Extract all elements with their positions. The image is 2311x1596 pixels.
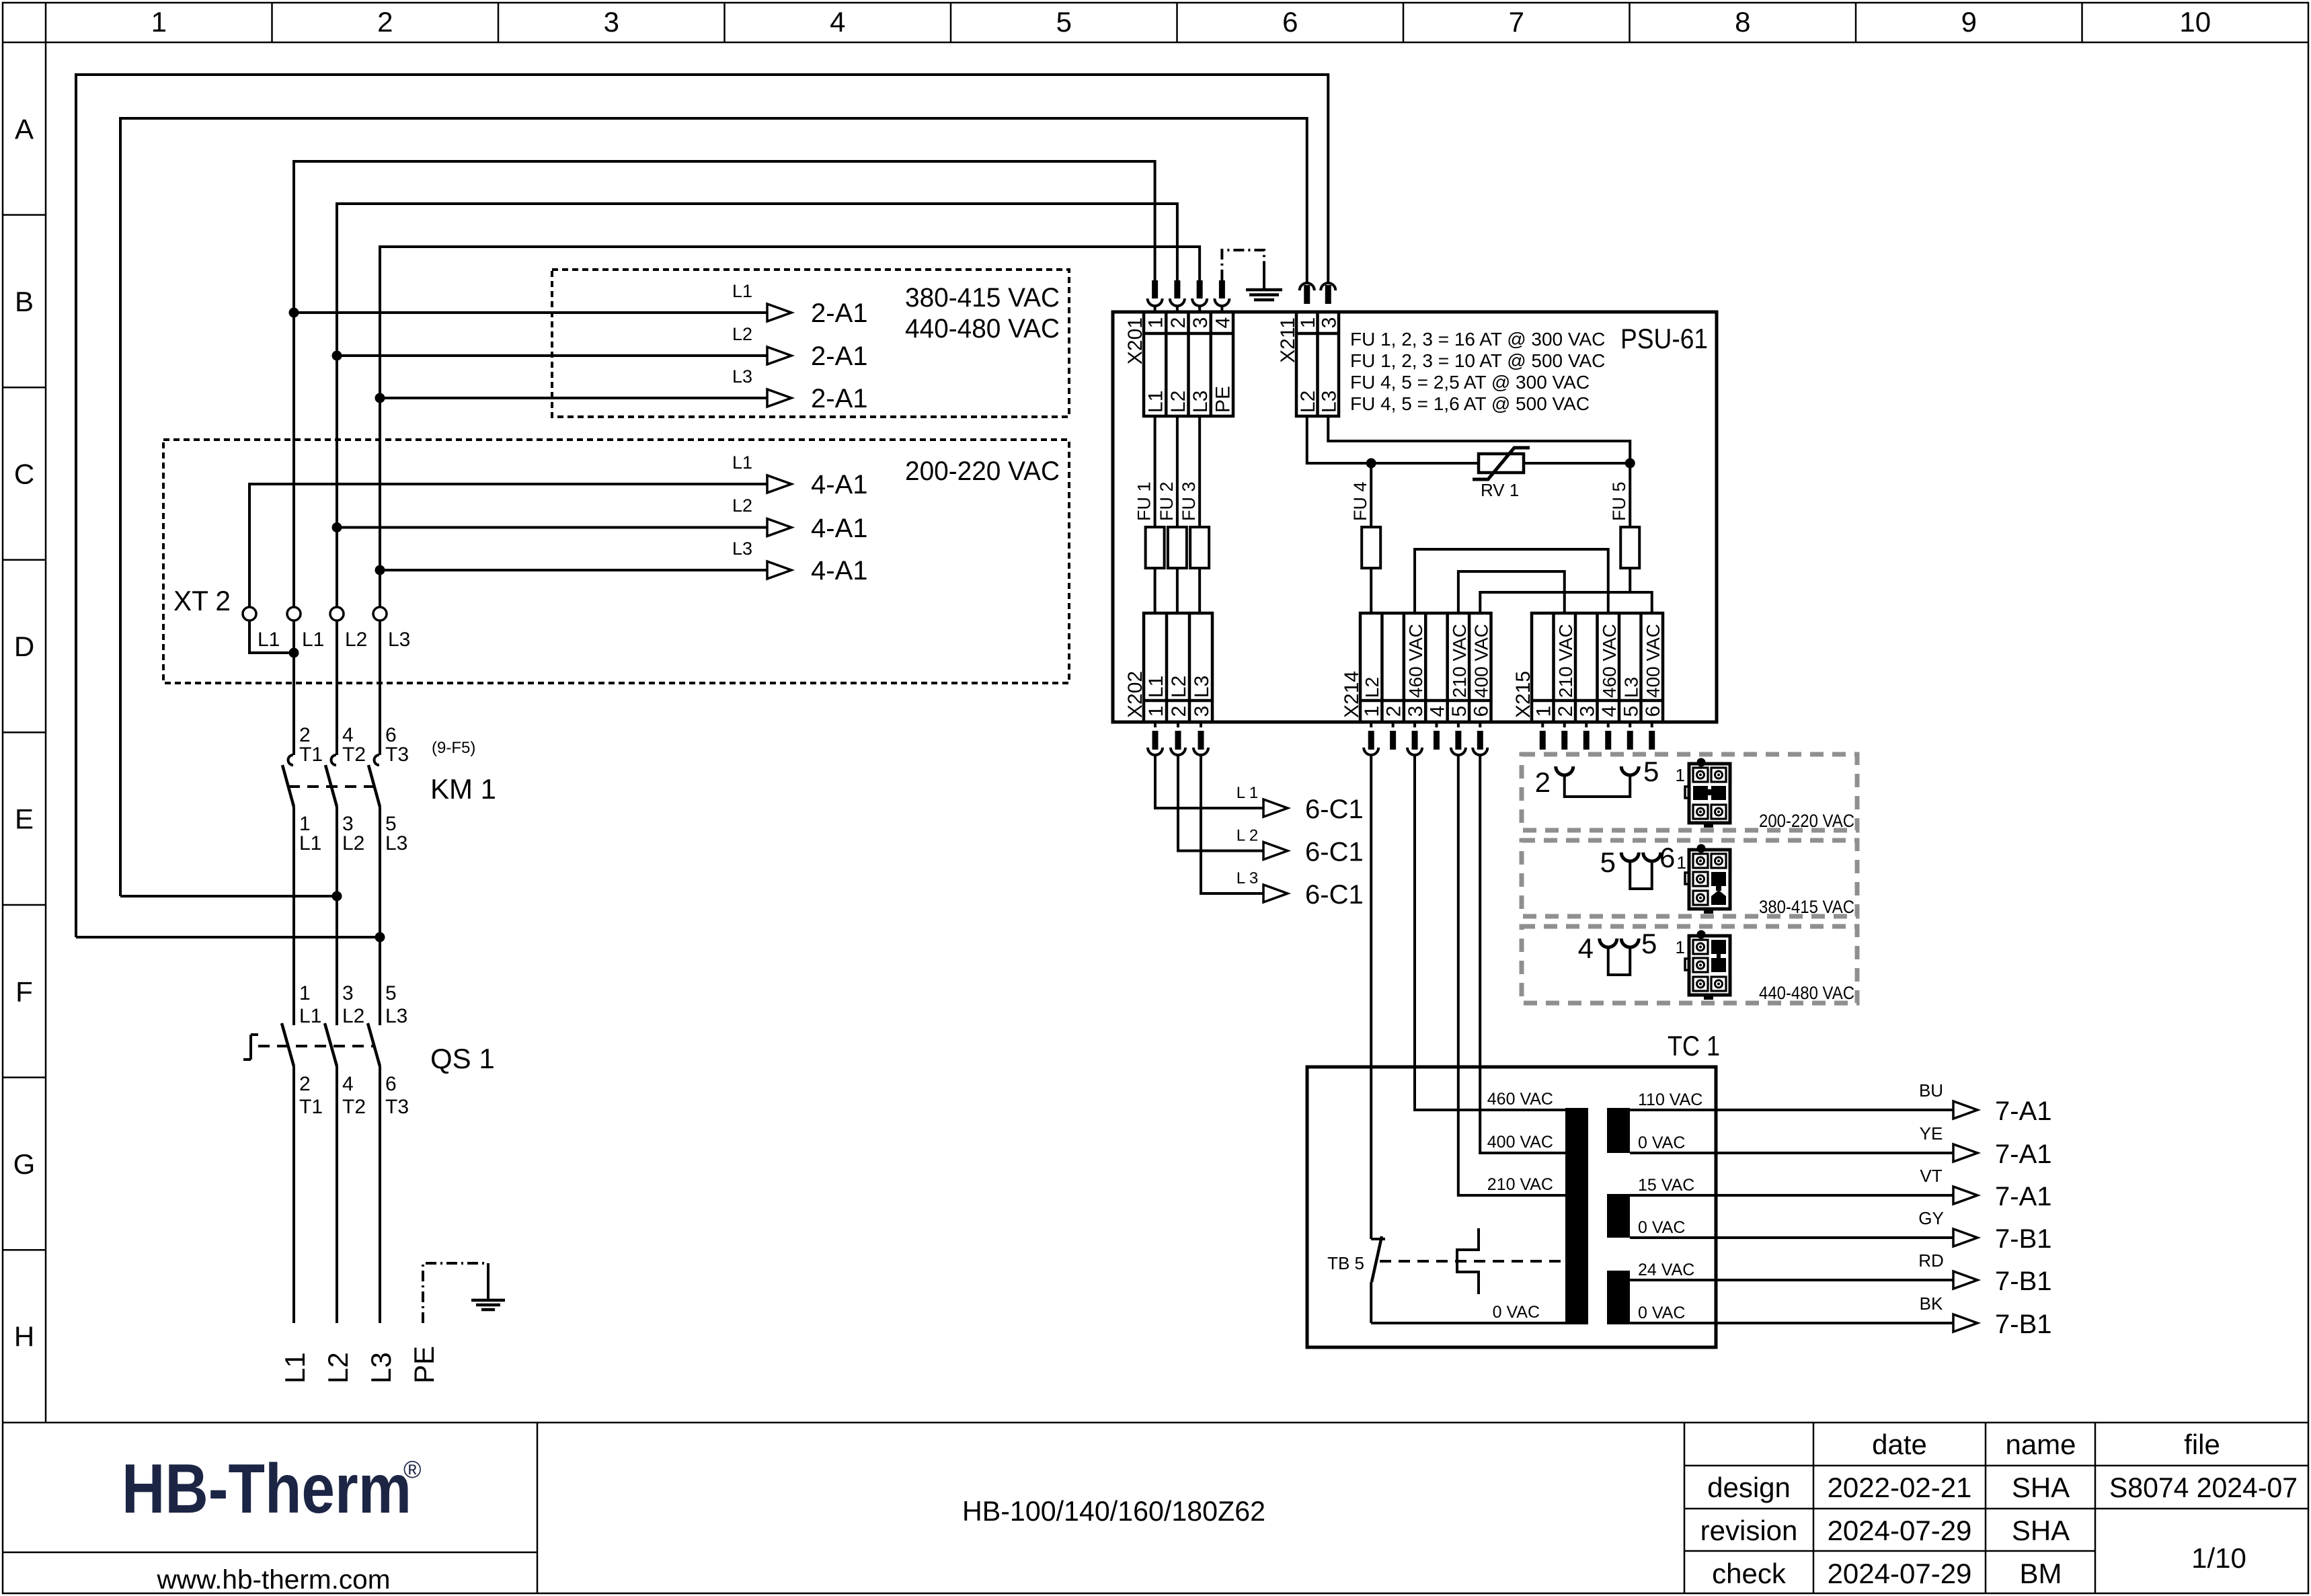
svg-text:C: C xyxy=(14,458,34,490)
svg-text:2-A1: 2-A1 xyxy=(811,384,868,413)
svg-text:L2: L2 xyxy=(732,324,752,344)
svg-text:4: 4 xyxy=(1426,706,1448,717)
svg-text:4-A1: 4-A1 xyxy=(811,514,868,543)
svg-text:L1: L1 xyxy=(258,629,280,651)
svg-text:L3: L3 xyxy=(1620,677,1641,698)
svg-text:5: 5 xyxy=(1643,756,1659,787)
svg-text:210 VAC: 210 VAC xyxy=(1449,624,1470,698)
svg-text:X202: X202 xyxy=(1124,671,1146,718)
svg-text:0 VAC: 0 VAC xyxy=(1638,1304,1685,1322)
svg-text:4-A1: 4-A1 xyxy=(811,556,868,586)
svg-text:L3: L3 xyxy=(1318,391,1340,413)
svg-text:5: 5 xyxy=(1620,706,1642,717)
svg-text:2-A1: 2-A1 xyxy=(811,342,868,371)
svg-text:L3: L3 xyxy=(732,366,752,387)
svg-text:7-A1: 7-A1 xyxy=(1995,1182,2052,1211)
svg-text:YE: YE xyxy=(1920,1123,1943,1144)
svg-text:G: G xyxy=(13,1148,36,1180)
svg-text:10: 10 xyxy=(2179,6,2211,38)
svg-text:T3: T3 xyxy=(385,744,409,766)
svg-text:460 VAC: 460 VAC xyxy=(1487,1090,1553,1109)
svg-text:TC 1: TC 1 xyxy=(1668,1030,1720,1062)
svg-text:400 VAC: 400 VAC xyxy=(1643,624,1663,698)
svg-text:6-C1: 6-C1 xyxy=(1305,880,1364,910)
svg-text:L 1: L 1 xyxy=(1237,784,1258,802)
svg-text:3: 3 xyxy=(1191,706,1213,717)
svg-text:BK: BK xyxy=(1920,1293,1943,1314)
svg-text:HB-Therm: HB-Therm xyxy=(122,1450,412,1528)
svg-text:15 VAC: 15 VAC xyxy=(1638,1176,1694,1195)
svg-text:L3: L3 xyxy=(1191,676,1213,698)
svg-text:L1: L1 xyxy=(732,281,752,301)
svg-text:S8074 2024-07: S8074 2024-07 xyxy=(2109,1472,2298,1503)
svg-text:2: 2 xyxy=(1555,706,1577,717)
svg-text:3: 3 xyxy=(1189,317,1212,329)
svg-text:www.hb-therm.com: www.hb-therm.com xyxy=(156,1565,390,1595)
svg-text:X201: X201 xyxy=(1124,317,1146,364)
svg-text:PSU-61: PSU-61 xyxy=(1620,323,1708,354)
svg-text:FU 4, 5 = 1,6 AT @ 500 VAC: FU 4, 5 = 1,6 AT @ 500 VAC xyxy=(1350,393,1590,414)
svg-text:440-480 VAC: 440-480 VAC xyxy=(905,314,1060,344)
svg-text:460 VAC: 460 VAC xyxy=(1405,624,1426,698)
svg-text:RV 1: RV 1 xyxy=(1481,480,1519,500)
svg-text:file: file xyxy=(2184,1429,2220,1460)
svg-text:210 VAC: 210 VAC xyxy=(1487,1175,1553,1194)
svg-text:GY: GY xyxy=(1918,1208,1944,1228)
svg-text:L2: L2 xyxy=(1297,391,1319,413)
svg-text:380-415 VAC: 380-415 VAC xyxy=(905,283,1060,313)
svg-text:F: F xyxy=(15,975,33,1007)
svg-text:0 VAC: 0 VAC xyxy=(1638,1218,1685,1237)
svg-text:440-480 VAC: 440-480 VAC xyxy=(1759,983,1854,1003)
svg-text:400 VAC: 400 VAC xyxy=(1471,624,1491,698)
svg-text:5: 5 xyxy=(1448,706,1471,717)
svg-text:1: 1 xyxy=(1676,765,1685,785)
svg-text:9: 9 xyxy=(1961,6,1977,38)
svg-text:1: 1 xyxy=(1677,852,1686,873)
svg-text:PE: PE xyxy=(408,1346,440,1384)
svg-text:L3: L3 xyxy=(385,1005,407,1027)
svg-text:SHA: SHA xyxy=(2012,1472,2070,1503)
svg-text:L3: L3 xyxy=(388,629,410,651)
svg-text:®: ® xyxy=(403,1455,422,1483)
svg-text:3: 3 xyxy=(1576,706,1598,717)
svg-text:FU 3: FU 3 xyxy=(1179,481,1199,521)
svg-text:SHA: SHA xyxy=(2012,1515,2070,1546)
svg-text:1: 1 xyxy=(1145,706,1167,717)
svg-text:24 VAC: 24 VAC xyxy=(1638,1261,1694,1279)
svg-text:FU 1: FU 1 xyxy=(1134,481,1154,521)
svg-text:0 VAC: 0 VAC xyxy=(1638,1133,1685,1152)
svg-text:5: 5 xyxy=(385,982,397,1004)
svg-text:BU: BU xyxy=(1919,1080,1943,1101)
svg-text:5: 5 xyxy=(1600,846,1616,878)
svg-text:0 VAC: 0 VAC xyxy=(1493,1303,1540,1322)
svg-text:TB 5: TB 5 xyxy=(1327,1253,1364,1273)
svg-text:QS 1: QS 1 xyxy=(430,1043,495,1074)
svg-text:1: 1 xyxy=(1676,937,1685,957)
svg-text:L2: L2 xyxy=(322,1352,354,1384)
svg-text:design: design xyxy=(1707,1472,1791,1503)
svg-text:L2: L2 xyxy=(342,832,364,854)
svg-text:FU 4: FU 4 xyxy=(1350,481,1370,521)
svg-text:210 VAC: 210 VAC xyxy=(1555,624,1576,698)
svg-text:L2: L2 xyxy=(732,495,752,516)
svg-text:X214: X214 xyxy=(1341,671,1363,718)
svg-text:L3: L3 xyxy=(365,1352,397,1384)
svg-text:BM: BM xyxy=(2020,1558,2062,1589)
svg-text:L1: L1 xyxy=(302,629,324,651)
svg-text:2022-02-21: 2022-02-21 xyxy=(1828,1472,1972,1503)
svg-text:4: 4 xyxy=(1212,317,1234,329)
svg-text:4: 4 xyxy=(1578,932,1594,964)
svg-text:6-C1: 6-C1 xyxy=(1305,838,1364,867)
svg-text:L1: L1 xyxy=(1145,676,1167,698)
svg-text:T1: T1 xyxy=(299,1096,323,1118)
svg-text:X215: X215 xyxy=(1512,671,1534,718)
svg-text:FU 2: FU 2 xyxy=(1157,481,1177,521)
svg-text:2: 2 xyxy=(299,1073,311,1095)
svg-text:VT: VT xyxy=(1920,1166,1942,1186)
svg-text:KM 1: KM 1 xyxy=(430,773,496,805)
svg-text:3: 3 xyxy=(1405,706,1427,717)
svg-text:H: H xyxy=(14,1321,34,1353)
svg-text:5: 5 xyxy=(1056,6,1072,38)
svg-text:4: 4 xyxy=(342,1073,354,1095)
svg-text:400 VAC: 400 VAC xyxy=(1487,1133,1553,1152)
svg-text:2: 2 xyxy=(1167,317,1189,329)
svg-text:3: 3 xyxy=(604,6,619,38)
svg-text:L 2: L 2 xyxy=(1237,827,1258,845)
svg-text:L1: L1 xyxy=(279,1352,311,1384)
svg-text:name: name xyxy=(2005,1429,2076,1460)
svg-text:L1: L1 xyxy=(299,1005,321,1027)
svg-text:2024-07-29: 2024-07-29 xyxy=(1828,1515,1972,1546)
svg-text:7: 7 xyxy=(1509,6,1524,38)
svg-text:8: 8 xyxy=(1735,6,1750,38)
svg-text:D: D xyxy=(14,631,34,662)
svg-text:T2: T2 xyxy=(342,1096,366,1118)
svg-text:7-B1: 7-B1 xyxy=(1995,1224,2052,1254)
svg-text:1: 1 xyxy=(1361,706,1383,717)
svg-text:200-220 VAC: 200-220 VAC xyxy=(1759,811,1854,831)
svg-text:L1: L1 xyxy=(732,452,752,473)
svg-text:PE: PE xyxy=(1212,386,1234,413)
svg-text:L3: L3 xyxy=(732,538,752,559)
svg-text:check: check xyxy=(1712,1558,1787,1589)
svg-text:T2: T2 xyxy=(342,744,366,766)
svg-text:E: E xyxy=(15,803,34,835)
svg-text:2: 2 xyxy=(377,6,393,38)
svg-text:L 3: L 3 xyxy=(1237,869,1258,887)
svg-text:HB-100/140/160/180Z62: HB-100/140/160/180Z62 xyxy=(962,1495,1265,1527)
svg-text:1: 1 xyxy=(151,6,167,38)
svg-text:date: date xyxy=(1872,1429,1927,1460)
svg-text:L3: L3 xyxy=(385,832,407,854)
svg-text:L2: L2 xyxy=(345,629,367,651)
svg-text:L2: L2 xyxy=(1168,676,1190,698)
svg-text:4: 4 xyxy=(830,6,845,38)
svg-text:revision: revision xyxy=(1700,1515,1798,1546)
svg-text:L2: L2 xyxy=(342,1005,364,1027)
svg-text:FU 1, 2, 3 = 10 AT @ 500 VA: FU 1, 2, 3 = 10 AT @ 500 VAC xyxy=(1350,350,1605,371)
svg-text:L3: L3 xyxy=(1189,391,1212,413)
svg-text:2: 2 xyxy=(1383,706,1405,717)
svg-text:2024-07-29: 2024-07-29 xyxy=(1828,1558,1972,1589)
svg-text:6: 6 xyxy=(385,1073,397,1095)
svg-text:7-A1: 7-A1 xyxy=(1995,1096,2052,1126)
svg-text:6: 6 xyxy=(1659,842,1675,873)
svg-text:3: 3 xyxy=(1318,317,1340,329)
svg-text:T1: T1 xyxy=(299,744,323,766)
svg-text:RD: RD xyxy=(1918,1250,1944,1271)
svg-text:4: 4 xyxy=(1598,706,1620,717)
svg-text:L2: L2 xyxy=(1362,677,1382,698)
svg-text:6-C1: 6-C1 xyxy=(1305,795,1364,824)
svg-text:200-220 VAC: 200-220 VAC xyxy=(905,456,1060,486)
svg-text:(9-F5): (9-F5) xyxy=(432,739,475,757)
svg-text:7-B1: 7-B1 xyxy=(1995,1267,2052,1296)
svg-text:460 VAC: 460 VAC xyxy=(1599,624,1620,698)
svg-text:380-415 VAC: 380-415 VAC xyxy=(1759,897,1854,917)
svg-text:110 VAC: 110 VAC xyxy=(1638,1090,1702,1109)
svg-text:T3: T3 xyxy=(385,1096,409,1118)
svg-text:2: 2 xyxy=(1168,706,1190,717)
svg-text:FU 5: FU 5 xyxy=(1609,481,1629,521)
svg-text:1: 1 xyxy=(1297,317,1319,329)
svg-text:5: 5 xyxy=(1641,928,1657,959)
svg-text:1/10: 1/10 xyxy=(2191,1542,2246,1574)
svg-text:XT 2: XT 2 xyxy=(173,585,231,616)
svg-text:A: A xyxy=(15,113,34,145)
svg-text:X211: X211 xyxy=(1277,317,1299,363)
svg-text:1: 1 xyxy=(299,982,311,1004)
svg-text:7-B1: 7-B1 xyxy=(1995,1310,2052,1339)
svg-text:6: 6 xyxy=(1470,706,1492,717)
svg-text:B: B xyxy=(15,286,34,317)
svg-text:1: 1 xyxy=(1532,706,1555,717)
svg-text:FU 1, 2, 3 = 16 AT @ 300 VA: FU 1, 2, 3 = 16 AT @ 300 VAC xyxy=(1350,329,1605,350)
svg-text:L2: L2 xyxy=(1167,391,1189,413)
svg-text:4-A1: 4-A1 xyxy=(811,470,868,500)
svg-text:7-A1: 7-A1 xyxy=(1995,1140,2052,1169)
svg-text:L1: L1 xyxy=(1145,391,1167,413)
svg-text:3: 3 xyxy=(342,982,354,1004)
svg-text:L1: L1 xyxy=(299,832,321,854)
svg-text:6: 6 xyxy=(1642,706,1664,717)
svg-text:1: 1 xyxy=(1145,317,1167,329)
svg-text:6: 6 xyxy=(1282,6,1298,38)
svg-text:FU 4, 5 = 2,5 AT @ 300 VAC: FU 4, 5 = 2,5 AT @ 300 VAC xyxy=(1350,372,1590,393)
svg-text:2-A1: 2-A1 xyxy=(811,298,868,328)
svg-text:2: 2 xyxy=(1535,766,1551,798)
